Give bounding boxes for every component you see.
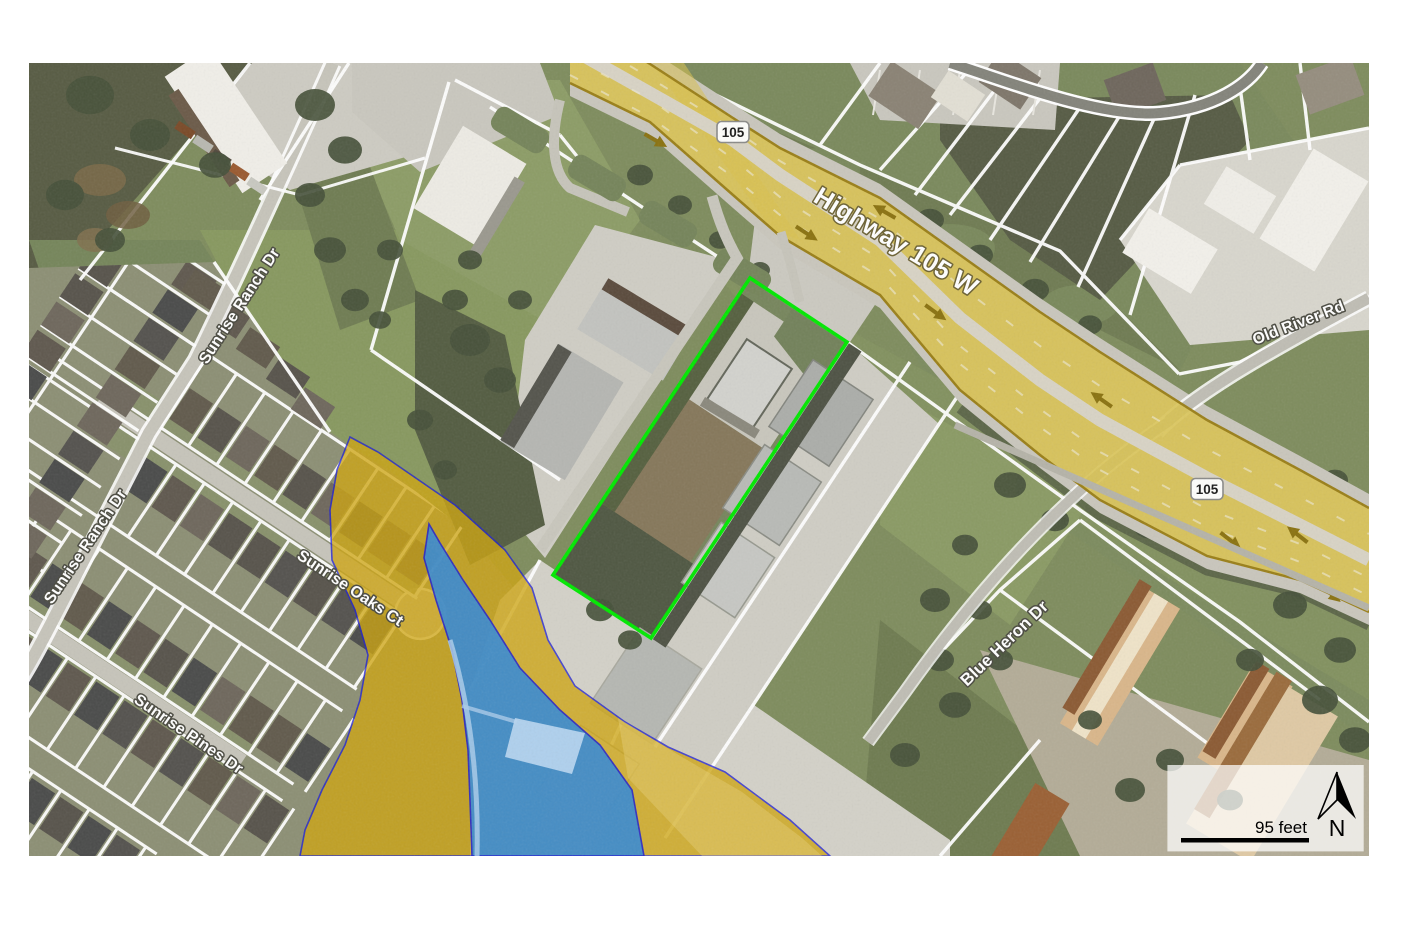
svg-text:95 feet: 95 feet (1255, 818, 1307, 837)
svg-text:N: N (1329, 815, 1346, 841)
